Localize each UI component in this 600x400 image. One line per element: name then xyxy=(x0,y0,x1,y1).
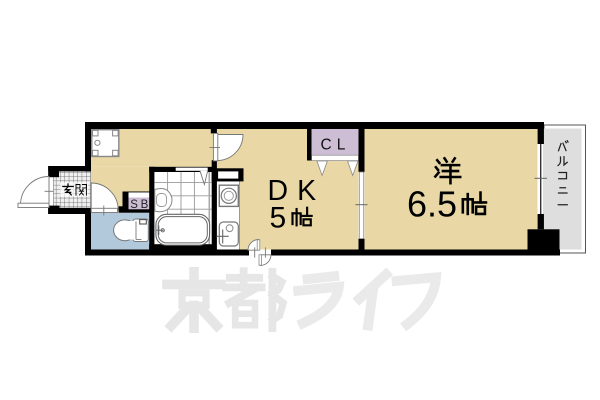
svg-text:SB: SB xyxy=(130,199,151,211)
svg-text:5: 5 xyxy=(270,202,287,235)
svg-text:CL: CL xyxy=(321,137,351,154)
svg-text:6.5: 6.5 xyxy=(407,184,457,225)
